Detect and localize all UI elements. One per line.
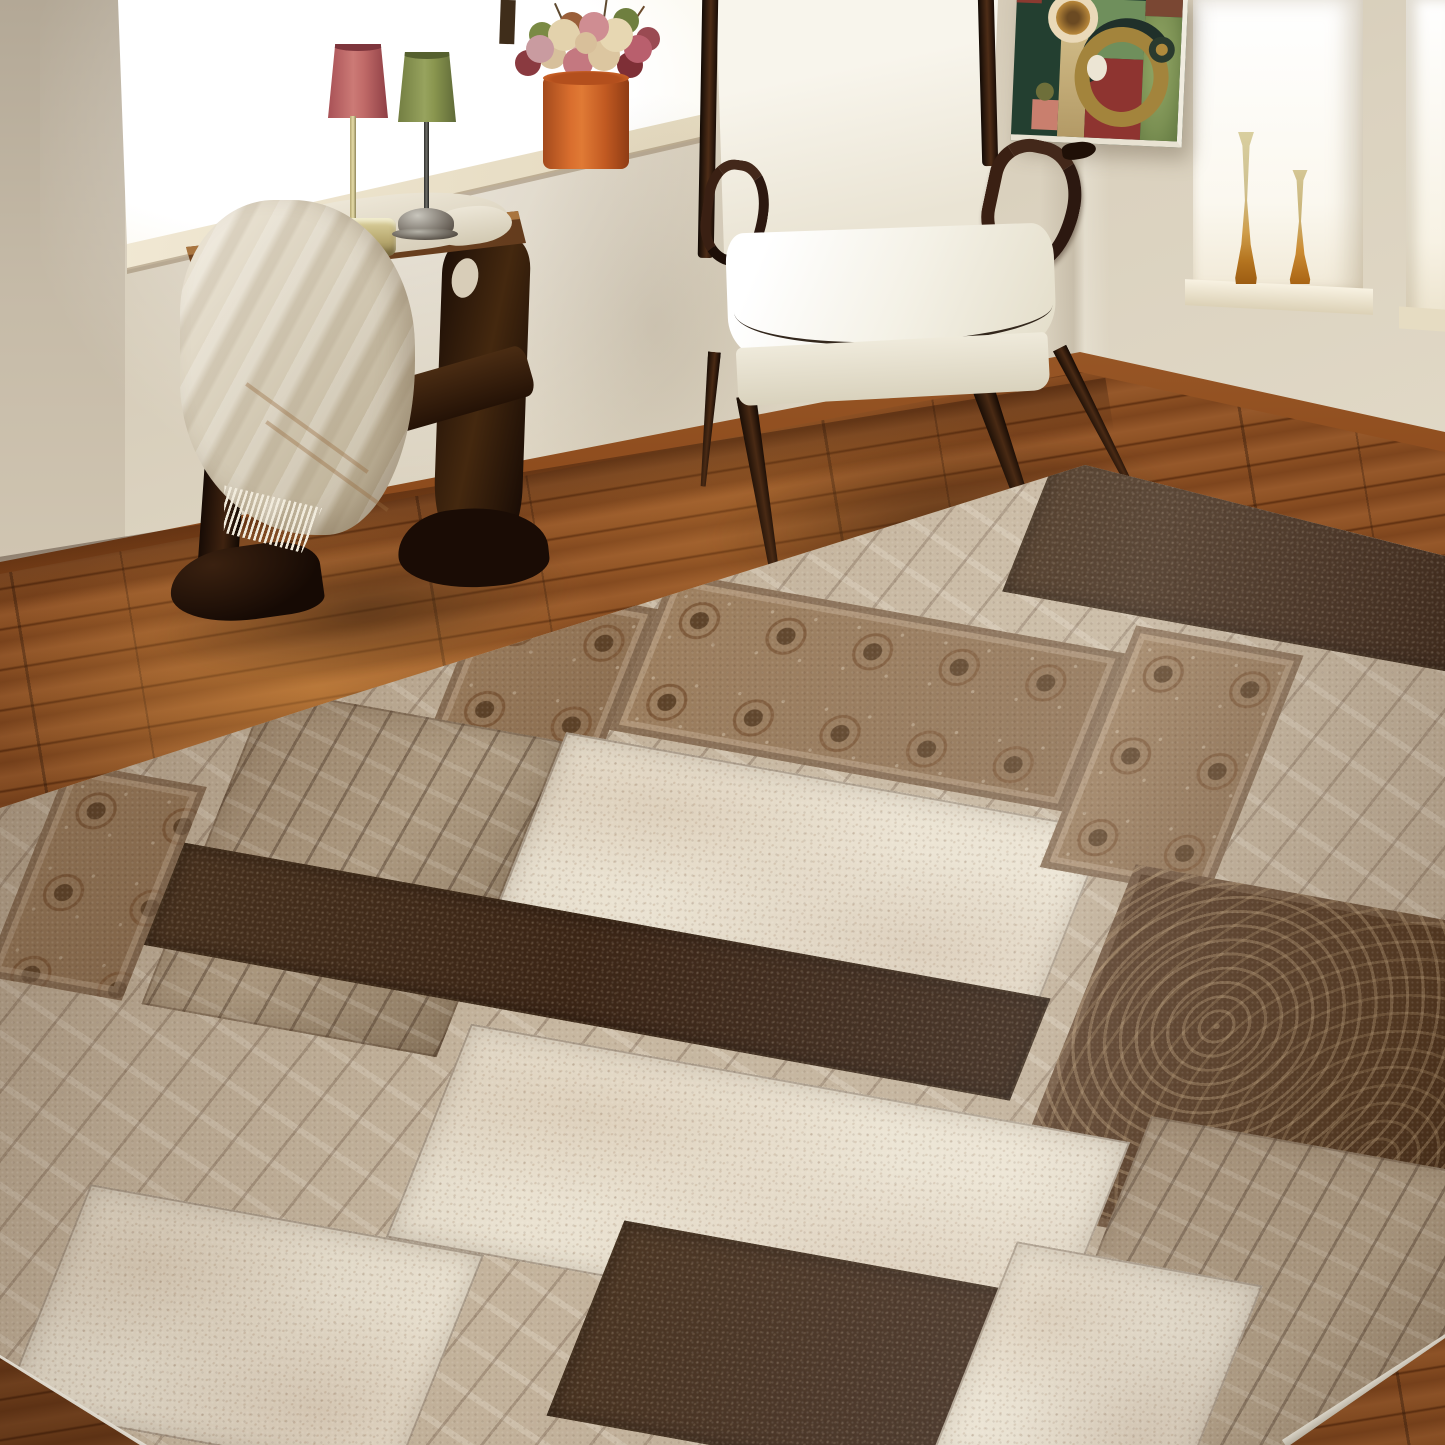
painting-salmon-square [1031,100,1059,131]
lamp-base-flare [392,228,458,240]
abstract-painting [1011,0,1189,148]
lamp-stem [424,122,429,212]
lamp-stem [350,116,356,220]
niche-window-left [1193,0,1363,298]
throw-blanket [180,200,415,535]
niche-sill-right [1399,306,1445,331]
window-frame [499,0,516,44]
flower-bouquet [575,32,597,54]
painting-olive-dot [1036,82,1055,101]
lamp-shade-red [328,44,388,118]
living-room-photo [0,0,1445,1445]
lamp-shade-green [398,52,456,122]
painting-rust-block [1146,0,1184,17]
niche-window-right [1406,0,1445,322]
painting-red-corner [1017,0,1043,4]
flower-vase [543,77,629,169]
